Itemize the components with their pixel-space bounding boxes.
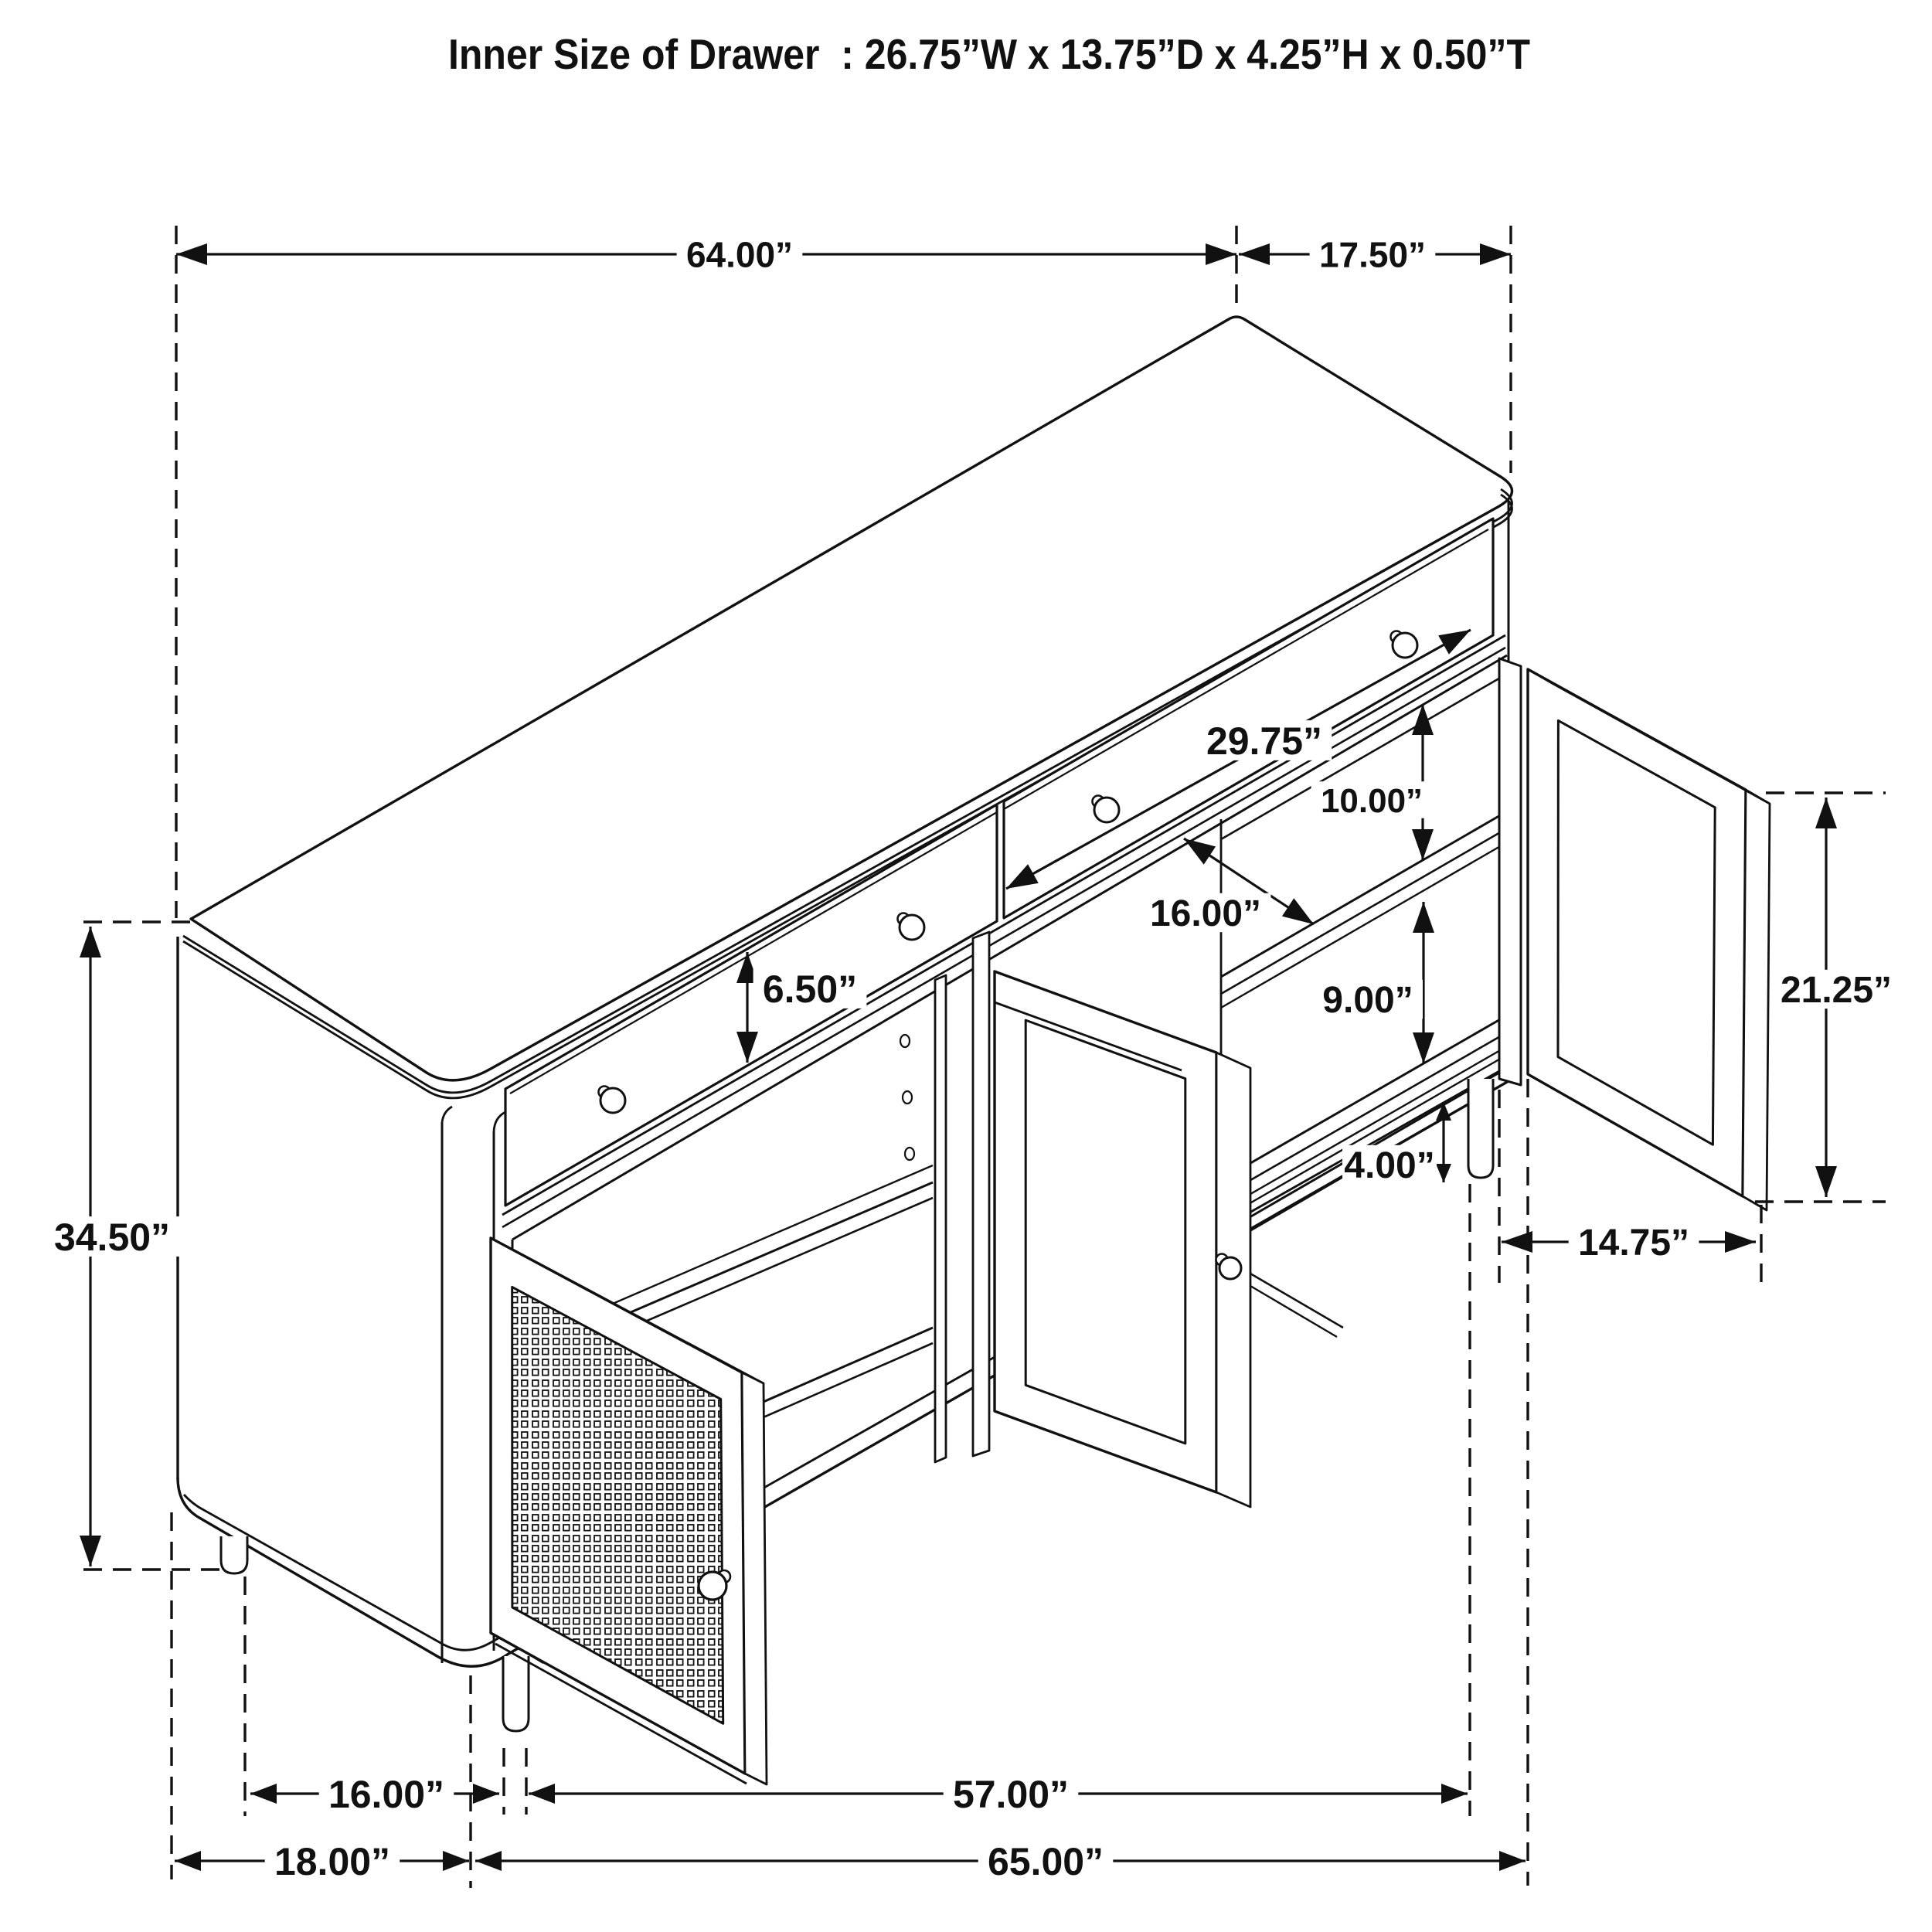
svg-text:6.50”: 6.50” <box>763 968 857 1011</box>
svg-text:16.00”: 16.00” <box>1150 893 1261 934</box>
svg-text:34.50”: 34.50” <box>54 1216 170 1259</box>
svg-text:18.00”: 18.00” <box>274 1840 390 1883</box>
svg-text:64.00”: 64.00” <box>686 235 793 275</box>
svg-text:29.75”: 29.75” <box>1206 719 1322 763</box>
svg-text:9.00”: 9.00” <box>1322 980 1413 1021</box>
svg-text:21.25”: 21.25” <box>1781 970 1892 1011</box>
svg-text:Inner Size of Drawer : 26.75”: Inner Size of Drawer : 26.75”W x 13.75”D… <box>448 30 1530 78</box>
svg-text:14.75”: 14.75” <box>1578 1223 1689 1264</box>
svg-text:10.00”: 10.00” <box>1321 782 1423 820</box>
svg-text:57.00”: 57.00” <box>953 1773 1069 1816</box>
svg-text:17.50”: 17.50” <box>1319 235 1426 275</box>
svg-text:16.00”: 16.00” <box>328 1773 444 1816</box>
svg-text:4.00”: 4.00” <box>1344 1145 1434 1186</box>
svg-text:65.00”: 65.00” <box>988 1840 1104 1883</box>
